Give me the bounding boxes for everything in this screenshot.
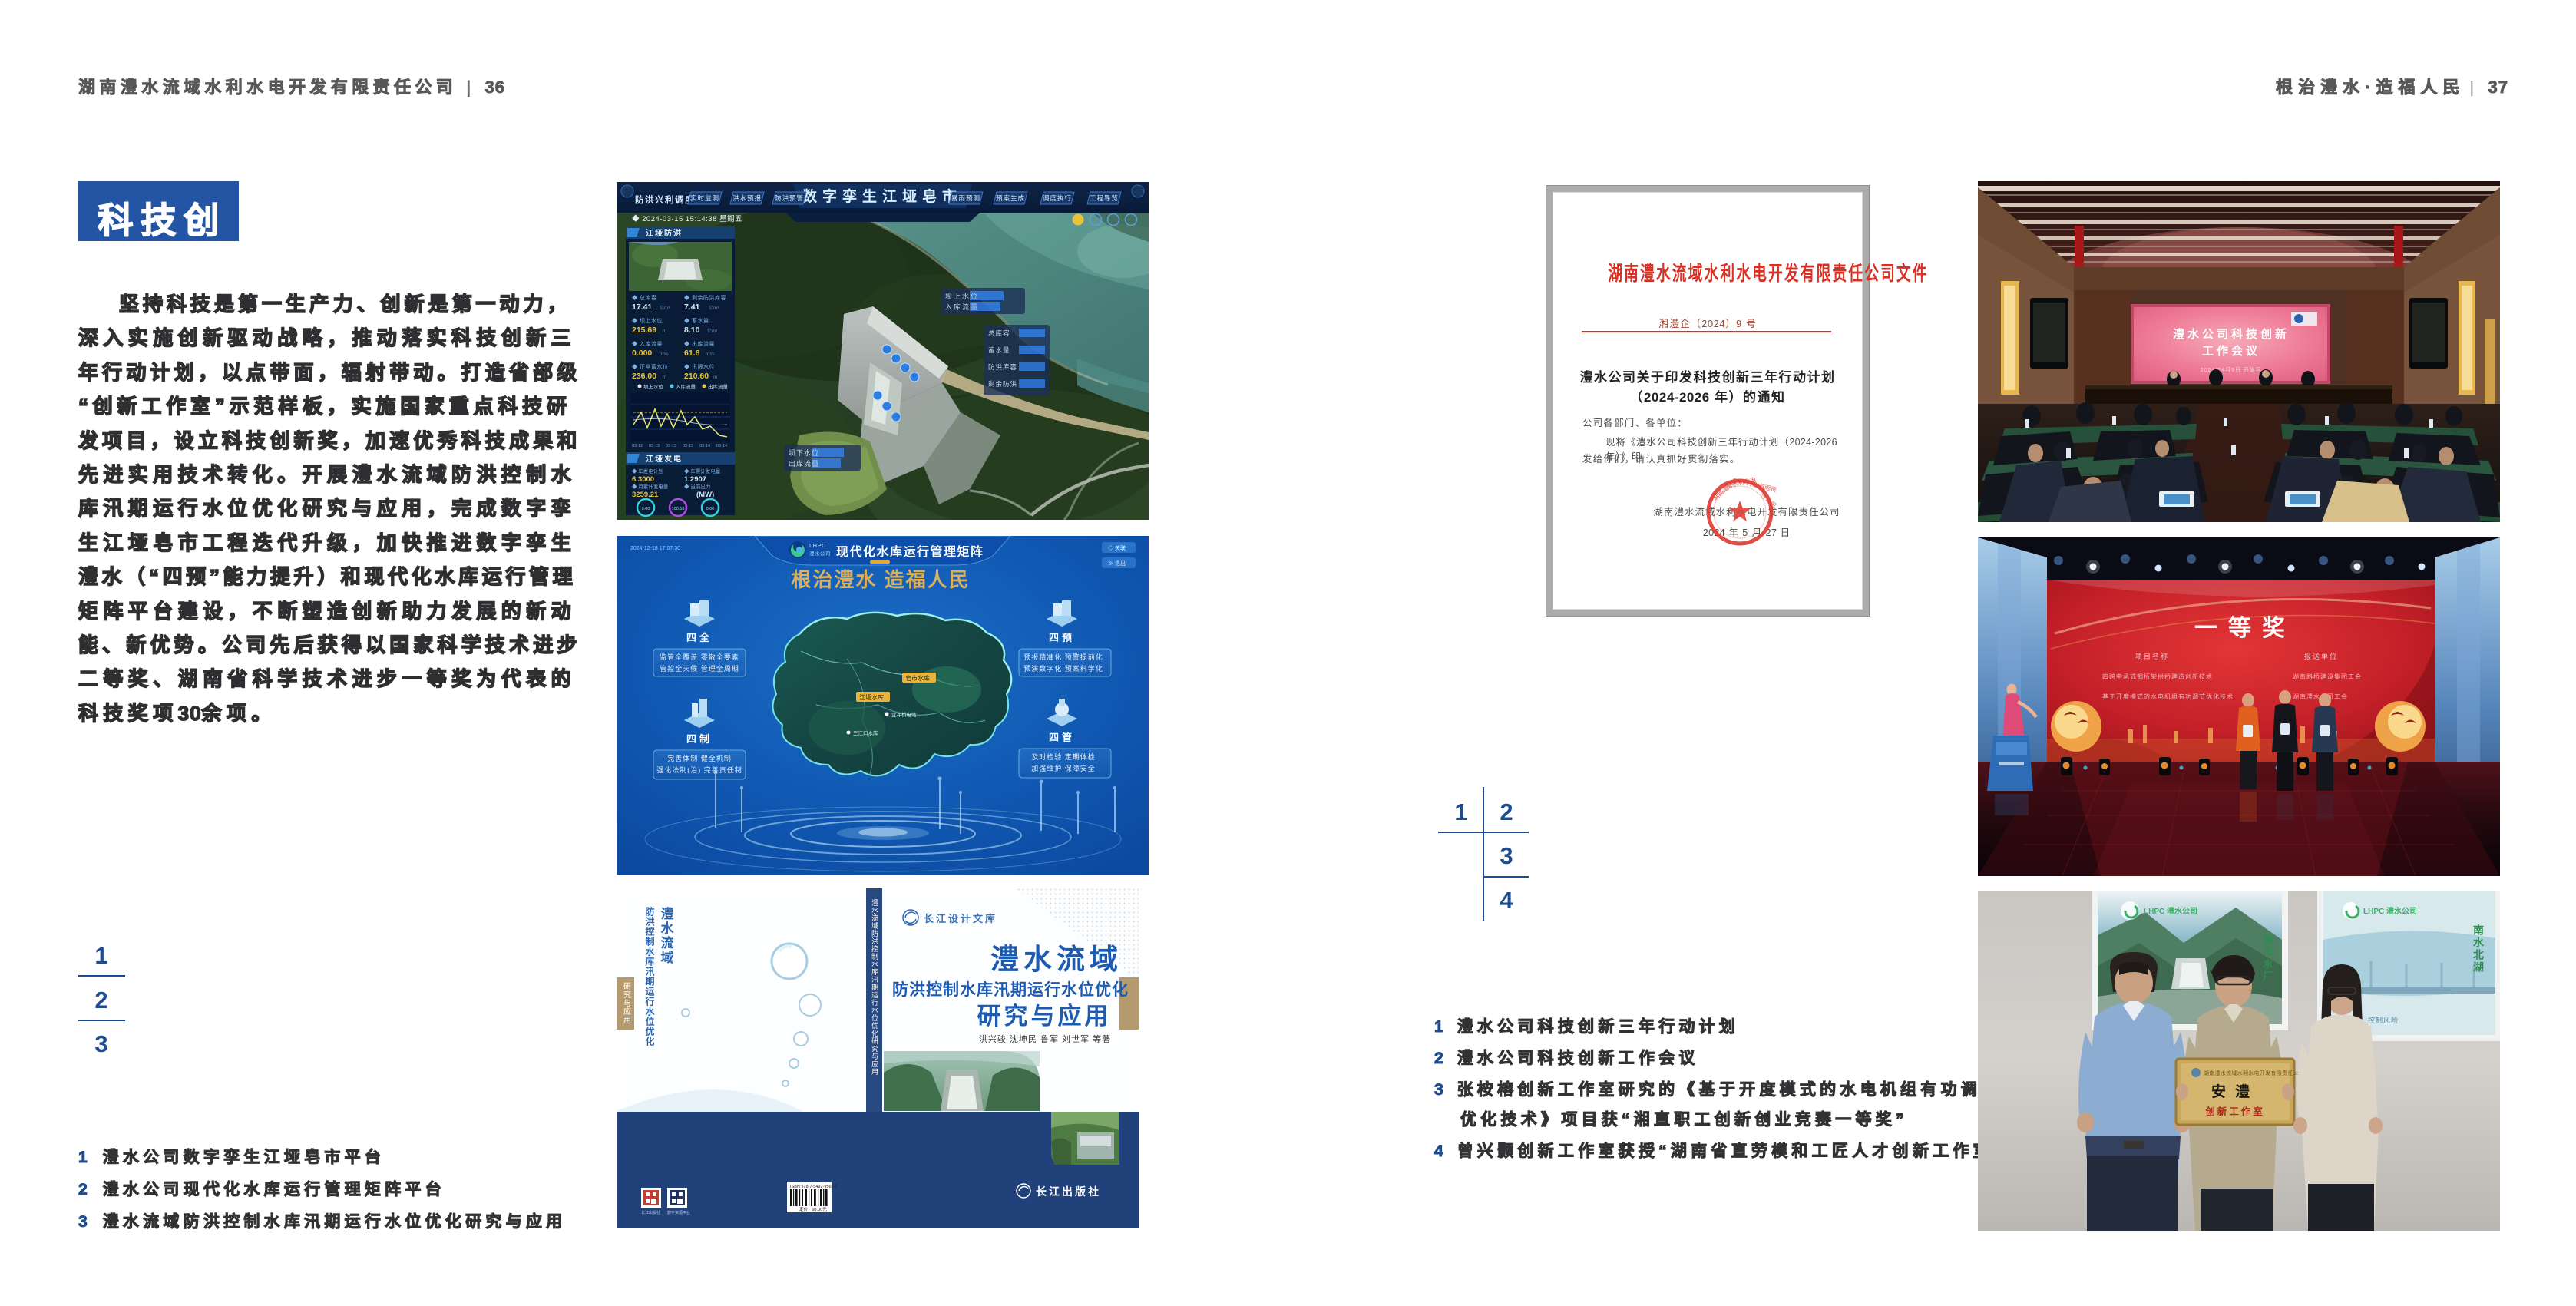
svg-text:南水北湖: 南水北湖 bbox=[2472, 924, 2485, 974]
svg-text:创新工作室: 创新工作室 bbox=[2204, 1106, 2265, 1117]
svg-text:报送单位: 报送单位 bbox=[2304, 652, 2338, 660]
svg-text:ISBN 978-7-5492-9565-3: ISBN 978-7-5492-9565-3 bbox=[790, 1185, 837, 1189]
svg-text:防洪控制水库汛期运行水位优化: 防洪控制水库汛期运行水位优化 bbox=[644, 906, 655, 1046]
svg-text:研究与应用: 研究与应用 bbox=[622, 982, 631, 1024]
svg-text:工程导览: 工程导览 bbox=[1090, 194, 1119, 202]
svg-text:预案生成: 预案生成 bbox=[996, 194, 1025, 202]
svg-text:236.00: 236.00 bbox=[632, 372, 656, 381]
svg-text:工作会议: 工作会议 bbox=[2202, 344, 2260, 358]
svg-text:江垭防洪: 江垭防洪 bbox=[646, 228, 683, 238]
svg-text:项目名称: 项目名称 bbox=[2135, 652, 2169, 660]
svg-text:宜冲桥电站: 宜冲桥电站 bbox=[891, 711, 917, 718]
svg-text:(MW): (MW) bbox=[696, 491, 714, 499]
svg-text:实时监测: 实时监测 bbox=[690, 194, 719, 202]
svg-text:出库流量: 出库流量 bbox=[708, 383, 729, 390]
svg-text:三江口水库: 三江口水库 bbox=[853, 729, 878, 736]
svg-text:03-12: 03-12 bbox=[632, 444, 643, 448]
svg-text:◆ 剩余防洪库容: ◆ 剩余防洪库容 bbox=[684, 294, 726, 301]
svg-text:0.000: 0.000 bbox=[632, 349, 652, 358]
svg-text:03-13: 03-13 bbox=[666, 444, 676, 448]
svg-text:基于开度模式的水电机组有功调节优化技术: 基于开度模式的水电机组有功调节优化技术 bbox=[2102, 693, 2234, 700]
svg-text:任公司: 任公司 bbox=[1759, 491, 1777, 509]
svg-text:湖南澧水流域水利水电开发有限责任公司: 湖南澧水流域水利水电开发有限责任公司 bbox=[2204, 1070, 2304, 1076]
svg-text:长江出版社: 长江出版社 bbox=[641, 1210, 660, 1215]
svg-text:7.41: 7.41 bbox=[684, 303, 700, 312]
svg-text:监管全覆盖 零散全要素: 监管全覆盖 零散全要素 bbox=[660, 653, 739, 661]
svg-text:调度执行: 调度执行 bbox=[1043, 194, 1072, 202]
svg-text:3259.21: 3259.21 bbox=[632, 491, 659, 499]
svg-text:鱼市水厂: 鱼市水厂 bbox=[2262, 933, 2274, 983]
svg-text:强化法制(治) 完善责任制: 强化法制(治) 完善责任制 bbox=[656, 765, 742, 774]
svg-text:6.3000: 6.3000 bbox=[632, 475, 654, 484]
svg-text:数字孪生江垭皂市: 数字孪生江垭皂市 bbox=[802, 187, 962, 205]
svg-text:◆ 出库流量: ◆ 出库流量 bbox=[684, 340, 715, 347]
svg-text:◆ 年发电计划: ◆ 年发电计划 bbox=[632, 468, 663, 474]
svg-text:◆ 蓄水量: ◆ 蓄水量 bbox=[684, 317, 709, 324]
svg-text:管控全天候 管理全周期: 管控全天候 管理全周期 bbox=[660, 664, 739, 673]
svg-text:预报精准化 预警提前化: 预报精准化 预警提前化 bbox=[1023, 653, 1103, 661]
svg-text:洪水预报: 洪水预报 bbox=[732, 194, 762, 202]
svg-text:四全: 四全 bbox=[686, 632, 713, 643]
svg-text:澧水流域: 澧水流域 bbox=[659, 906, 674, 965]
svg-text:总库容: 总库容 bbox=[988, 329, 1010, 337]
svg-text:◆ 入库流量: ◆ 入库流量 bbox=[632, 340, 663, 347]
svg-text:澧水公司科技创新: 澧水公司科技创新 bbox=[2173, 327, 2290, 341]
svg-text:0.00: 0.00 bbox=[706, 507, 715, 511]
svg-text:m: m bbox=[663, 329, 666, 334]
svg-text:及时检验 定期体检: 及时检验 定期体检 bbox=[1031, 752, 1096, 761]
svg-text:◆ 汛限水位: ◆ 汛限水位 bbox=[684, 363, 715, 370]
svg-text:LHPC 澧水公司: LHPC 澧水公司 bbox=[2363, 906, 2417, 916]
svg-text:出库流量: 出库流量 bbox=[789, 459, 819, 468]
svg-text:LHPC: LHPC bbox=[809, 542, 826, 549]
svg-text:安澧: 安澧 bbox=[2211, 1083, 2259, 1100]
svg-text:预演数字化 预案科学化: 预演数字化 预案科学化 bbox=[1023, 664, 1103, 673]
svg-text:澧水流域: 澧水流域 bbox=[990, 944, 1123, 975]
svg-text:暴雨预测: 暴雨预测 bbox=[951, 194, 980, 202]
svg-text:江垭发电: 江垭发电 bbox=[646, 454, 683, 464]
svg-text:四预: 四预 bbox=[1049, 632, 1075, 643]
svg-text:03-14: 03-14 bbox=[716, 444, 727, 448]
svg-text:100.58: 100.58 bbox=[672, 507, 685, 511]
svg-text:◆ 年累计发电量: ◆ 年累计发电量 bbox=[684, 468, 721, 474]
svg-text:亿m³: 亿m³ bbox=[660, 305, 670, 311]
svg-text:≫ 退出: ≫ 退出 bbox=[1108, 560, 1126, 567]
svg-text:m: m bbox=[713, 375, 717, 380]
svg-text:m³/s: m³/s bbox=[660, 352, 669, 357]
svg-text:61.8: 61.8 bbox=[684, 349, 700, 358]
svg-text:数字资源平台: 数字资源平台 bbox=[667, 1210, 690, 1215]
svg-text:2024年4月9日 开发区: 2024年4月9日 开发区 bbox=[2201, 366, 2262, 373]
svg-text:防洪兴利调度: 防洪兴利调度 bbox=[635, 194, 695, 205]
svg-text:03-13: 03-13 bbox=[649, 444, 660, 448]
svg-text:亿m³: 亿m³ bbox=[709, 305, 719, 311]
svg-text:◆ 正常蓄水位: ◆ 正常蓄水位 bbox=[632, 363, 668, 370]
svg-text:现代化水库运行管理矩阵: 现代化水库运行管理矩阵 bbox=[836, 544, 984, 559]
svg-text:四跨中承式钢桁架拱桥建造创新技术: 四跨中承式钢桁架拱桥建造创新技术 bbox=[2102, 673, 2213, 680]
svg-text:坝下水位: 坝下水位 bbox=[789, 448, 819, 457]
svg-text:防洪库容: 防洪库容 bbox=[988, 363, 1017, 371]
svg-text:◆ 当前出力: ◆ 当前出力 bbox=[684, 483, 710, 490]
svg-text:亿m³: 亿m³ bbox=[707, 328, 717, 334]
svg-text:◆ 总库容: ◆ 总库容 bbox=[632, 294, 656, 301]
svg-text:◆ 2024-03-15 15:14:38 星期五: ◆ 2024-03-15 15:14:38 星期五 bbox=[632, 214, 742, 223]
svg-text:LHPC 澧水公司: LHPC 澧水公司 bbox=[2144, 906, 2197, 916]
svg-text:03-14: 03-14 bbox=[699, 444, 710, 448]
svg-text:完善体制 健全机制: 完善体制 健全机制 bbox=[667, 754, 732, 762]
svg-text:17.41: 17.41 bbox=[632, 303, 652, 312]
svg-text:210.60: 210.60 bbox=[684, 372, 709, 381]
svg-text:湖南路桥建设集团工会: 湖南路桥建设集团工会 bbox=[2293, 673, 2362, 680]
svg-text:◆ 坝上水位: ◆ 坝上水位 bbox=[632, 317, 663, 324]
svg-text:研究与应用: 研究与应用 bbox=[977, 1003, 1112, 1030]
svg-text:四管: 四管 bbox=[1049, 732, 1075, 743]
svg-text:◇ 关联: ◇ 关联 bbox=[1108, 544, 1126, 551]
svg-text:防洪控制水库汛期运行水位优化: 防洪控制水库汛期运行水位优化 bbox=[892, 980, 1129, 999]
svg-text:m³/s: m³/s bbox=[706, 352, 715, 357]
svg-text:215.69: 215.69 bbox=[632, 326, 656, 335]
svg-text:2024-12-18 17:07:30: 2024-12-18 17:07:30 bbox=[630, 546, 680, 551]
svg-text:一等奖: 一等奖 bbox=[2194, 615, 2296, 641]
svg-text:澧水流域防洪控制水库汛期运行水位优化研究与应用: 澧水流域防洪控制水库汛期运行水位优化研究与应用 bbox=[871, 898, 878, 1076]
svg-text:江垭水库: 江垭水库 bbox=[859, 693, 884, 701]
svg-text:坝上水位: 坝上水位 bbox=[643, 383, 664, 390]
svg-text:防洪预警: 防洪预警 bbox=[775, 194, 804, 202]
svg-text:1.2907: 1.2907 bbox=[684, 475, 706, 484]
svg-text:入库流量: 入库流量 bbox=[676, 383, 696, 390]
svg-text:定价：98.00元: 定价：98.00元 bbox=[799, 1206, 827, 1212]
svg-text:m: m bbox=[663, 375, 666, 380]
svg-text:◆ 月累计发电量: ◆ 月累计发电量 bbox=[632, 483, 669, 490]
svg-text:根治澧水 造福人民: 根治澧水 造福人民 bbox=[791, 568, 970, 591]
svg-text:03-13: 03-13 bbox=[683, 444, 693, 448]
svg-text:澧水公司: 澧水公司 bbox=[809, 550, 831, 557]
svg-text:长江设计文库: 长江设计文库 bbox=[924, 913, 997, 924]
svg-text:0.00: 0.00 bbox=[642, 507, 650, 511]
svg-text:长江出版社: 长江出版社 bbox=[1036, 1185, 1101, 1198]
svg-text:入库流量: 入库流量 bbox=[945, 303, 979, 311]
svg-text:8.10: 8.10 bbox=[684, 326, 700, 335]
svg-text:剩余防洪: 剩余防洪 bbox=[988, 380, 1017, 388]
svg-text:洪兴骏 沈坤民 鲁军 刘世军 等著: 洪兴骏 沈坤民 鲁军 刘世军 等著 bbox=[979, 1033, 1111, 1044]
svg-text:四制: 四制 bbox=[686, 733, 713, 745]
svg-text:加强维护 保障安全: 加强维护 保障安全 bbox=[1031, 764, 1096, 772]
svg-text:坝上水位: 坝上水位 bbox=[945, 292, 979, 300]
svg-text:皂市水库: 皂市水库 bbox=[905, 674, 930, 682]
svg-text:蓄水量: 蓄水量 bbox=[988, 346, 1010, 354]
